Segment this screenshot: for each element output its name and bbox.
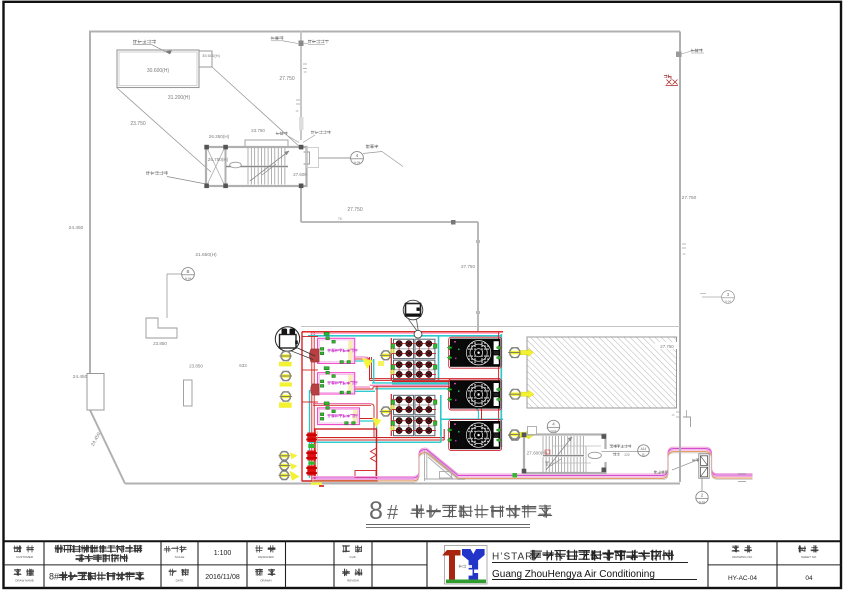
svg-text:24.450: 24.450 [69, 225, 84, 231]
svg-text:DESIGNED: DESIGNED [258, 555, 275, 559]
svg-text:27.750: 27.750 [461, 264, 475, 269]
svg-text:27.750: 27.750 [660, 344, 674, 349]
svg-text:24.450: 24.450 [73, 374, 88, 380]
svg-text:REVIEW: REVIEW [347, 579, 359, 583]
svg-text:220: 220 [624, 453, 630, 457]
svg-text:30.600(H): 30.600(H) [147, 68, 170, 74]
svg-text:633: 633 [239, 363, 247, 368]
svg-text:27.600: 27.600 [293, 172, 307, 177]
svg-text:N-04: N-04 [699, 500, 705, 504]
svg-text:N-04: N-04 [551, 429, 557, 433]
svg-text:21.650(H): 21.650(H) [195, 252, 217, 258]
svg-text:27.750: 27.750 [682, 195, 697, 201]
svg-text:B: B [186, 269, 189, 274]
svg-text:CHK.: CHK. [349, 555, 356, 559]
svg-text:DRAW NAME: DRAW NAME [15, 579, 34, 583]
svg-text:SHEET NO.: SHEET NO. [801, 555, 817, 559]
svg-text:23.850: 23.850 [189, 364, 203, 369]
svg-text:A14: A14 [641, 447, 647, 451]
svg-text:2016/11/08: 2016/11/08 [205, 574, 240, 581]
svg-text:27.750: 27.750 [347, 207, 363, 213]
svg-text:DATE: DATE [176, 579, 184, 583]
svg-text:N-04: N-04 [354, 161, 361, 165]
svg-text:DRAWN: DRAWN [260, 579, 271, 583]
svg-text:HY-AC-04: HY-AC-04 [728, 575, 757, 582]
svg-text:31.200(H): 31.200(H) [168, 95, 191, 101]
svg-text:04: 04 [805, 575, 813, 582]
svg-text:N-04: N-04 [725, 300, 731, 304]
svg-text:H’STAR: H’STAR [492, 552, 533, 563]
svg-text:8: 8 [369, 497, 383, 525]
svg-text:#: # [387, 502, 399, 524]
svg-text:SCALE: SCALE [175, 555, 185, 559]
svg-text:35.600(H): 35.600(H) [202, 53, 220, 58]
svg-text:CUSTOMER: CUSTOMER [16, 555, 34, 559]
svg-text:23.750: 23.750 [251, 128, 265, 133]
svg-text:23.850: 23.850 [153, 341, 167, 346]
svg-text:23.750: 23.750 [130, 121, 146, 127]
svg-text:1:100: 1:100 [214, 550, 232, 557]
svg-text:27.600(H): 27.600(H) [527, 451, 548, 456]
svg-text:8#: 8# [49, 572, 59, 582]
svg-text:25.750(H): 25.750(H) [208, 157, 229, 162]
svg-text:N-04: N-04 [185, 277, 192, 281]
svg-text:27.750: 27.750 [279, 76, 295, 82]
svg-text:DRAWING NO.: DRAWING NO. [732, 555, 753, 559]
svg-text:B: B [642, 453, 644, 457]
svg-text:26.350(H): 26.350(H) [209, 134, 230, 139]
svg-text:Guang ZhouHengya Air Condition: Guang ZhouHengya Air Conditioning [492, 569, 655, 580]
